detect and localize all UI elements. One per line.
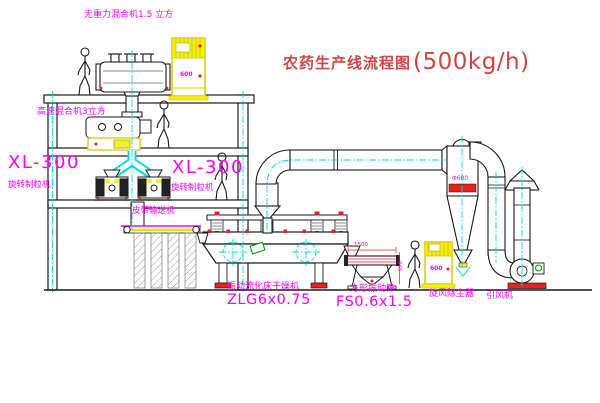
sieve-width-dim: 1500 [354, 243, 368, 249]
granulator-left-model: XL-300 [8, 154, 80, 172]
control-cabinet-1-drawing [169, 38, 208, 100]
belt-conveyor-label: 皮带输送机 [132, 207, 175, 216]
high-speed-mixer-label: 高速混合机3立方 [37, 108, 106, 117]
granulator-right-drawing [136, 170, 172, 200]
worker-figure [408, 241, 420, 288]
cyclone-diameter-label: Φ600 [452, 176, 468, 182]
gravity-mixer-label: 无重力混合机1.5 立方 [84, 11, 173, 20]
induced-draft-fan-drawing [508, 259, 546, 289]
diagram-title: 农药生产线流程图 (500kg/h) [283, 49, 530, 75]
belt-conveyor-drawing [121, 226, 201, 288]
cabinet1-mark: 600 [180, 72, 193, 78]
fan-label: 引风机 [486, 292, 513, 301]
title-text: 农药生产线流程图 [283, 52, 411, 73]
cabinet2-mark: 600 [430, 266, 443, 272]
sieve-depth-dim: 945 [396, 261, 402, 272]
worker-figure [78, 48, 90, 95]
worker-figure [157, 101, 169, 148]
dryer-model-label: ZLG6x0.75 [227, 293, 311, 308]
square-sieve-drawing [344, 246, 400, 289]
gravity-mixer-drawing [96, 54, 170, 118]
sieve-model-label: FS0.6x1.5 [336, 295, 413, 310]
process-flow-diagram: 农药生产线流程图 (500kg/h) 无重力混合机1.5 立方 高速混合机3立方… [0, 0, 600, 403]
title-capacity: (500kg/h) [413, 49, 530, 75]
dryer-name-label: 振动流化床干燥机 [227, 283, 299, 292]
granulator-right-label: 旋转制粒机 [171, 184, 214, 193]
sieve-name-label: 方形振动筛 [350, 285, 395, 294]
cyclone-red-band [449, 184, 476, 192]
high-speed-mixer-drawing [86, 112, 151, 150]
granulator-left-drawing [94, 170, 130, 200]
granulator-right-model: XL-300 [172, 159, 244, 177]
granulator-left-label: 旋转制粒机 [8, 181, 51, 190]
cyclone-label: 旋风除尘器 [429, 290, 474, 299]
